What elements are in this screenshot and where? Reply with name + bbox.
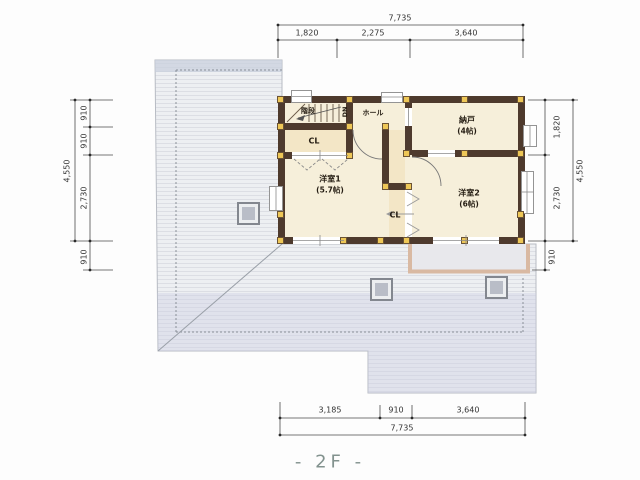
dim-right-seg2: 2,730 (553, 187, 562, 210)
dim-bottom-seg3: 3,640 (457, 406, 480, 415)
dimension-lines (70, 25, 578, 436)
dim-right-below: 910 (548, 249, 557, 264)
storage-size-label: (4帖) (457, 126, 477, 137)
hall-label: ホール (363, 108, 384, 118)
dim-right-seg1: 1,820 (553, 116, 562, 139)
dim-bottom-total: 7,735 (391, 424, 414, 433)
room1-label: 洋室1 (319, 174, 341, 185)
room2-size-label: (6帖) (459, 199, 479, 210)
door-arc-room2 (412, 157, 441, 186)
door-arc-room1 (353, 130, 382, 159)
dim-left-seg3: 2,730 (80, 187, 89, 210)
floor-name-label: - 2F - (295, 452, 365, 473)
dim-top-total: 7,735 (389, 14, 412, 23)
dim-left-seg2: 910 (80, 133, 89, 148)
dim-left-below: 910 (80, 249, 89, 264)
room1-size-label: (5.7帖) (316, 185, 344, 196)
dim-bottom-seg1: 3,185 (319, 406, 342, 415)
storage-label: 納戸 (459, 115, 475, 126)
room2-label: 洋室2 (458, 188, 480, 199)
dim-top-seg1: 1,820 (296, 29, 319, 38)
dim-left-total: 4,550 (63, 160, 72, 183)
dim-bottom-seg2: 910 (388, 406, 403, 415)
closet-upper-label: CL (309, 137, 320, 146)
closet-middle-label: CL (390, 211, 401, 220)
dim-top-seg3: 3,640 (455, 29, 478, 38)
dimension-dots (74, 24, 575, 437)
closet-upper-doors (294, 159, 348, 170)
dim-left-seg1: 910 (80, 105, 89, 120)
door-arcs (353, 130, 441, 186)
dim-top-seg2: 2,275 (362, 29, 385, 38)
floor-plan-page: 階段 DN ホール 納戸 (4帖) CL 洋室1 (5.7帖) CL 洋室2 (… (0, 0, 640, 480)
stairs-dn-label: DN (341, 107, 349, 118)
stairs-label: 階段 (301, 106, 315, 116)
dim-right-total: 4,550 (576, 160, 585, 183)
